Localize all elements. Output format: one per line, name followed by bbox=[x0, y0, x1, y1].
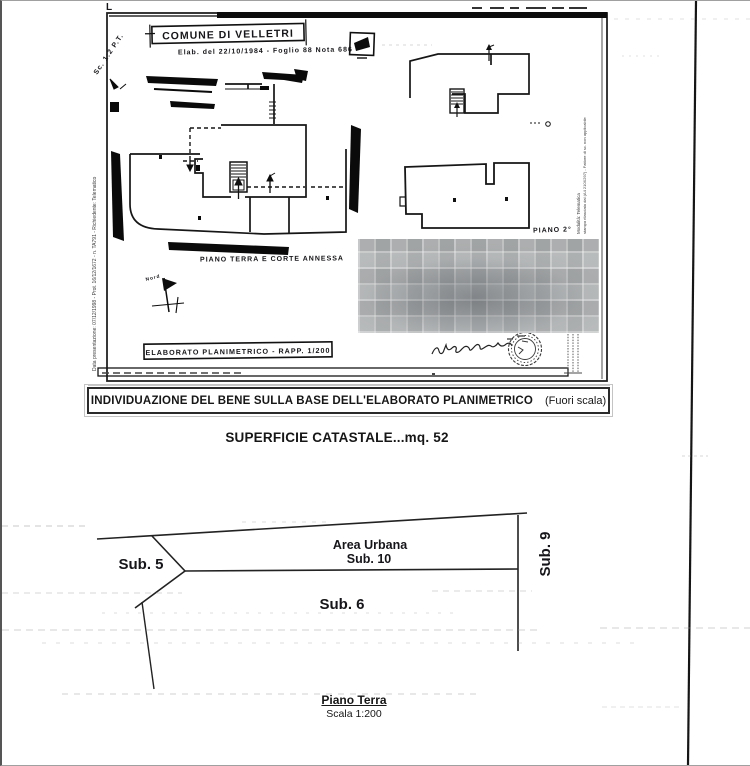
cadastral-surface-line: SUPERFICIE CATASTALE...mq. 52 bbox=[87, 430, 587, 445]
room-label-mark bbox=[453, 198, 456, 202]
right-margin-text-line2: stampa rilasciata dal (A4 210X297) - Fat… bbox=[582, 116, 587, 234]
label-sub5: Sub. 5 bbox=[118, 556, 163, 573]
diagram-stray-line bbox=[142, 602, 154, 689]
document-artwork: L Data presentazione: 07/12/1998 - Prot.… bbox=[2, 1, 750, 765]
north-label: Nord bbox=[145, 273, 161, 282]
label-area-urbana: Area Urbana bbox=[333, 538, 408, 552]
round-stamp-icon bbox=[507, 333, 542, 366]
road-edge-line bbox=[154, 89, 212, 92]
scan-artifact-lines bbox=[2, 19, 750, 707]
upper-right-plan bbox=[410, 44, 550, 126]
signature-scribble bbox=[432, 343, 512, 354]
label-sub9: Sub. 9 bbox=[537, 531, 554, 576]
pixelated-censor-block bbox=[358, 239, 599, 333]
page-vertical-rule bbox=[688, 1, 696, 765]
comune-title-box: COMUNE DI VELLETRI bbox=[145, 19, 307, 48]
protocol-line: Elab. del 22/10/1984 - Foglio 88 Nota 68… bbox=[178, 46, 353, 56]
right-margin-text-line1: Modalità: Telematica bbox=[576, 193, 581, 234]
corner-registration-mark: L bbox=[106, 2, 112, 13]
dashed-boundary-lines bbox=[183, 128, 346, 187]
elaborato-label: ELABORATO PLANIMETRICO - RAPP. 1/200 bbox=[145, 346, 330, 357]
ground-floor-plan: PIANO TERRA E CORTE ANNESSA bbox=[110, 69, 361, 264]
handwritten-arrow-mark bbox=[110, 79, 126, 89]
label-sub6: Sub. 6 bbox=[319, 596, 364, 613]
label-sub10: Sub. 10 bbox=[347, 552, 392, 566]
vent-arrow-icon bbox=[486, 44, 494, 61]
room-label-mark bbox=[505, 197, 508, 201]
caption-note: (Fuori scala) bbox=[545, 395, 606, 407]
illegible-vertical-text bbox=[564, 334, 582, 373]
building-outline bbox=[130, 84, 346, 234]
second-floor-plan bbox=[400, 163, 529, 228]
footer-floor-title: Piano Terra bbox=[254, 693, 454, 707]
handwritten-corner-note: Sc. 1:2 P.T. bbox=[93, 33, 125, 76]
frame-bottom-bar bbox=[98, 368, 568, 376]
small-stamp-box-icon bbox=[350, 33, 375, 58]
diagram-footer: Piano Terra Scala 1:200 bbox=[254, 693, 454, 720]
survey-point-icon bbox=[546, 122, 551, 127]
diagram-middle-line bbox=[185, 569, 518, 571]
ground-floor-label: PIANO TERRA E CORTE ANNESSA bbox=[200, 255, 344, 263]
caption-text: INDIVIDUAZIONE DEL BENE SULLA BASE DELL'… bbox=[91, 395, 533, 407]
left-margin-text: Data presentazione: 07/12/1998 - Prot. 1… bbox=[92, 176, 98, 371]
comune-title: COMUNE DI VELLETRI bbox=[162, 28, 294, 43]
scanned-cadastral-document: L Data presentazione: 07/12/1998 - Prot.… bbox=[0, 0, 750, 766]
diagram-top-line bbox=[97, 513, 527, 539]
footer-scale: Scala 1:200 bbox=[254, 708, 454, 720]
subdivision-diagram-lines bbox=[97, 513, 527, 689]
elaborato-label-box: ELABORATO PLANIMETRICO - RAPP. 1/200 bbox=[144, 342, 332, 359]
caption-box: INDIVIDUAZIONE DEL BENE SULLA BASE DELL'… bbox=[87, 387, 610, 414]
second-floor-label: PIANO 2° bbox=[533, 225, 572, 234]
direction-arrow-icons bbox=[187, 159, 275, 193]
staircase-symbol-ground bbox=[230, 162, 247, 199]
north-symbol: Nord bbox=[145, 273, 184, 313]
